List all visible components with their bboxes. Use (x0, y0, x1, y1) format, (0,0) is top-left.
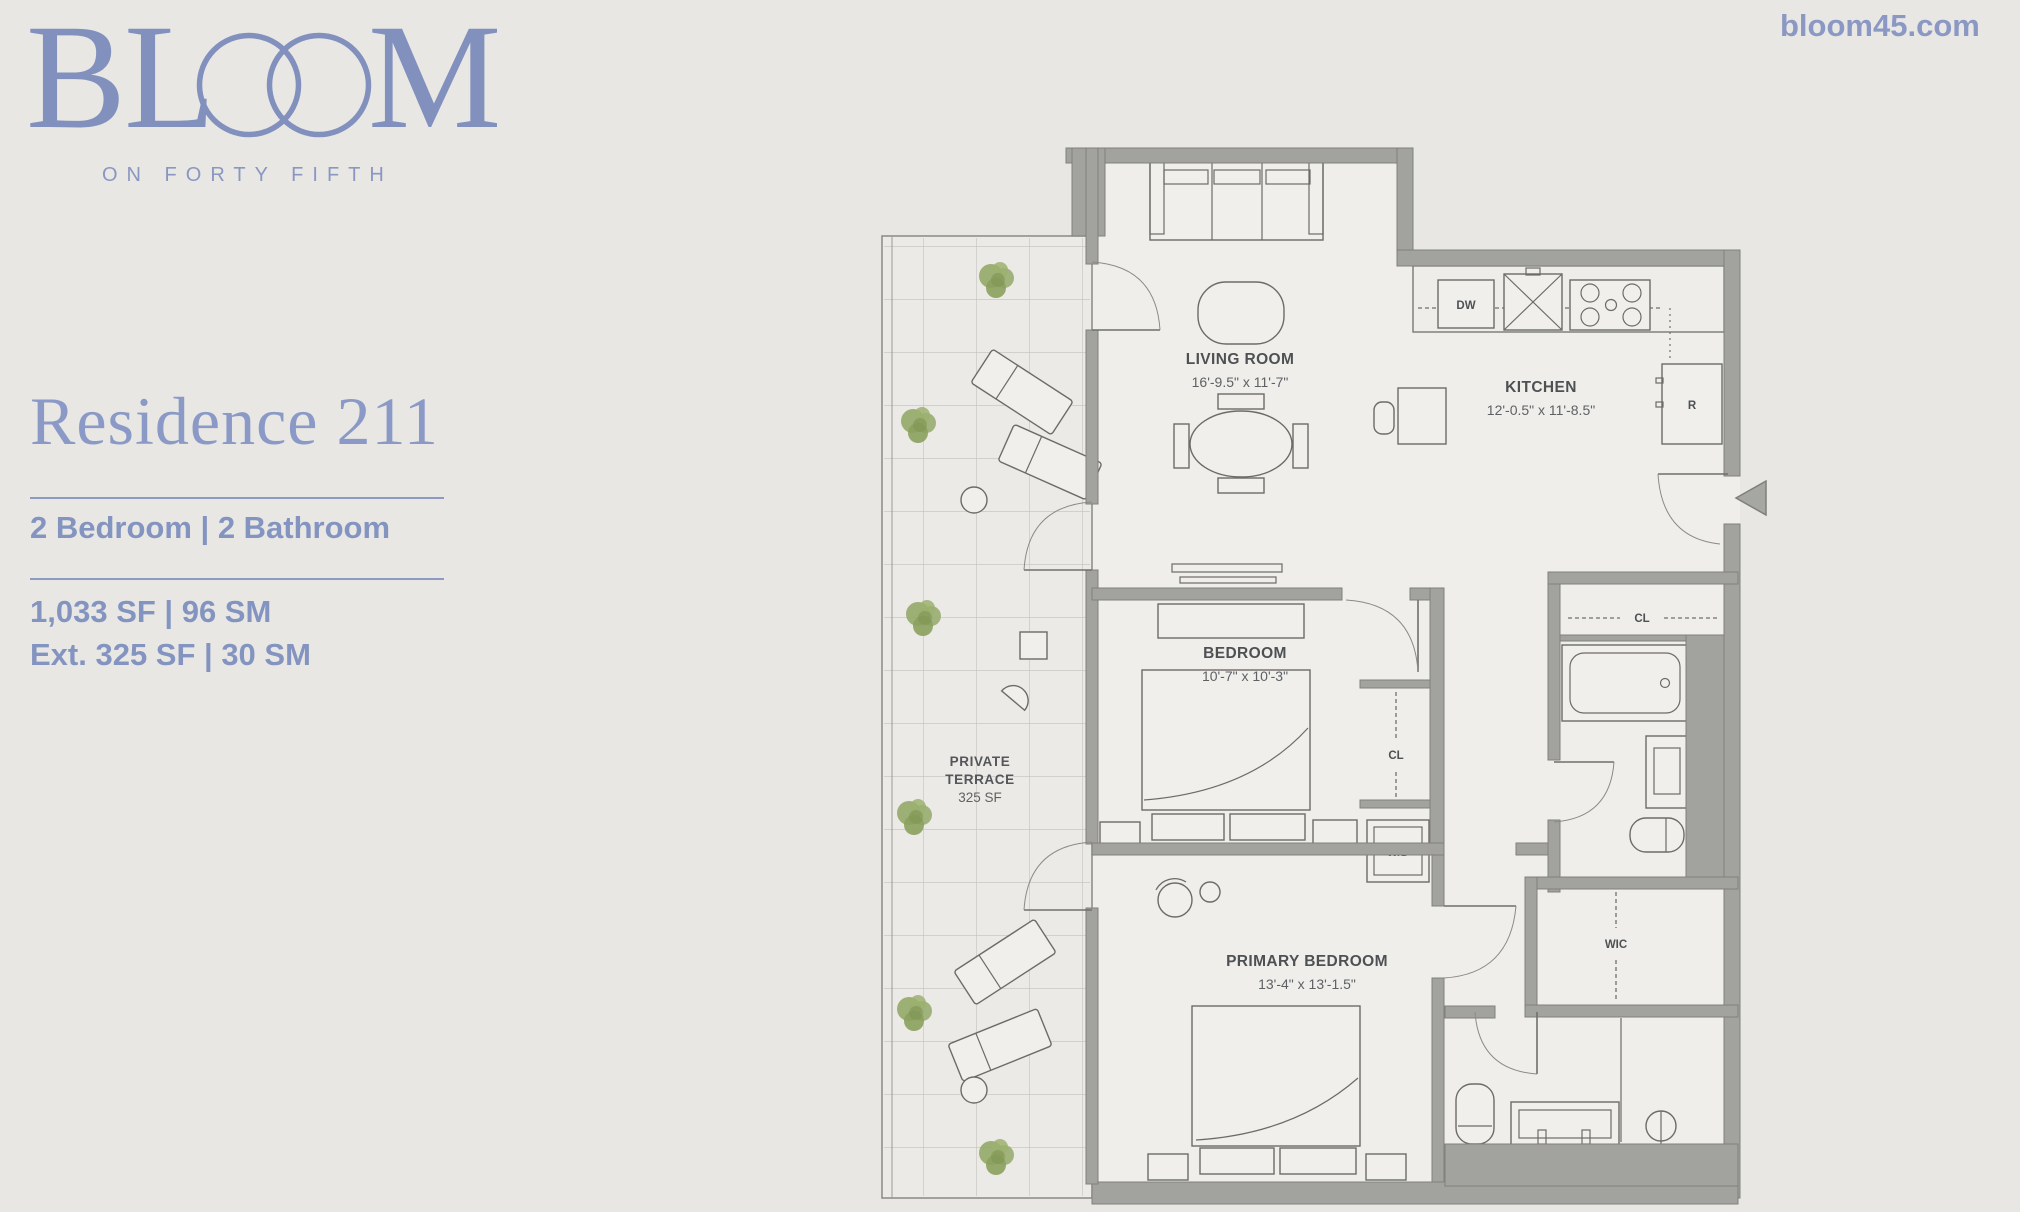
kitchen-dims: 12'-0.5" x 11'-8.5" (1487, 402, 1595, 418)
bedroom-closet-label: CL (1388, 750, 1403, 762)
bedroom-dresser (1158, 604, 1304, 638)
bath2-toilet (1630, 818, 1684, 852)
logo-text-bl: BL (26, 2, 214, 152)
divider (30, 578, 444, 580)
floor-plan: DW R (870, 140, 1770, 1212)
refrigerator: R (1656, 364, 1722, 444)
stove (1570, 280, 1650, 330)
primary-bath-toilet (1456, 1084, 1494, 1144)
terrace-label-line2: TERRACE (945, 772, 1014, 787)
website-link[interactable]: bloom45.com (1780, 8, 1980, 44)
bathtub (1562, 645, 1688, 721)
bath2-vanity (1646, 736, 1688, 808)
living-room-label: LIVING ROOM (1186, 351, 1295, 368)
primary-bedroom-dims: 13'-4" x 13'-1.5" (1258, 976, 1356, 992)
terrace-side-table (961, 487, 987, 513)
dishwasher: DW (1438, 280, 1494, 328)
hall-closet-label: CL (1634, 613, 1649, 625)
refrigerator-label: R (1688, 400, 1697, 412)
terrace-planter (1020, 632, 1047, 659)
living-room-dims: 16'-9.5" x 11'-7" (1192, 374, 1289, 390)
kitchen-label: KITCHEN (1505, 379, 1577, 396)
entry-arrow-icon (1736, 481, 1766, 515)
coffee-table (1198, 282, 1284, 344)
logo-interlocking-o-icon (196, 32, 372, 138)
primary-bedroom-label: PRIMARY BEDROOM (1226, 953, 1388, 970)
residence-config: 2 Bedroom | 2 Bathroom (30, 510, 390, 546)
dishwasher-label: DW (1456, 300, 1475, 312)
brand-tagline: ON FORTY FIFTH (102, 164, 393, 187)
logo-text-m: M (368, 2, 499, 152)
bedroom-label: BEDROOM (1203, 645, 1287, 662)
walk-in-closet-label: WIC (1605, 939, 1627, 951)
bedroom-dims: 10'-7" x 10'-3" (1202, 668, 1288, 684)
page-title: Residence 211 (30, 382, 439, 461)
divider (30, 497, 444, 499)
terrace-side-table (961, 1077, 987, 1103)
page: BL M ON FORTY FIFTH bloom45.com Residenc… (0, 0, 2020, 1212)
residence-area: 1,033 SF | 96 SM (30, 594, 271, 630)
kitchen-sink (1504, 268, 1562, 330)
residence-area-exterior: Ext. 325 SF | 30 SM (30, 637, 311, 673)
primary-bath-vanity (1511, 1102, 1619, 1146)
sofa (1150, 162, 1323, 240)
terrace-area: 325 SF (958, 790, 1002, 805)
terrace-label-line1: PRIVATE (950, 754, 1011, 769)
